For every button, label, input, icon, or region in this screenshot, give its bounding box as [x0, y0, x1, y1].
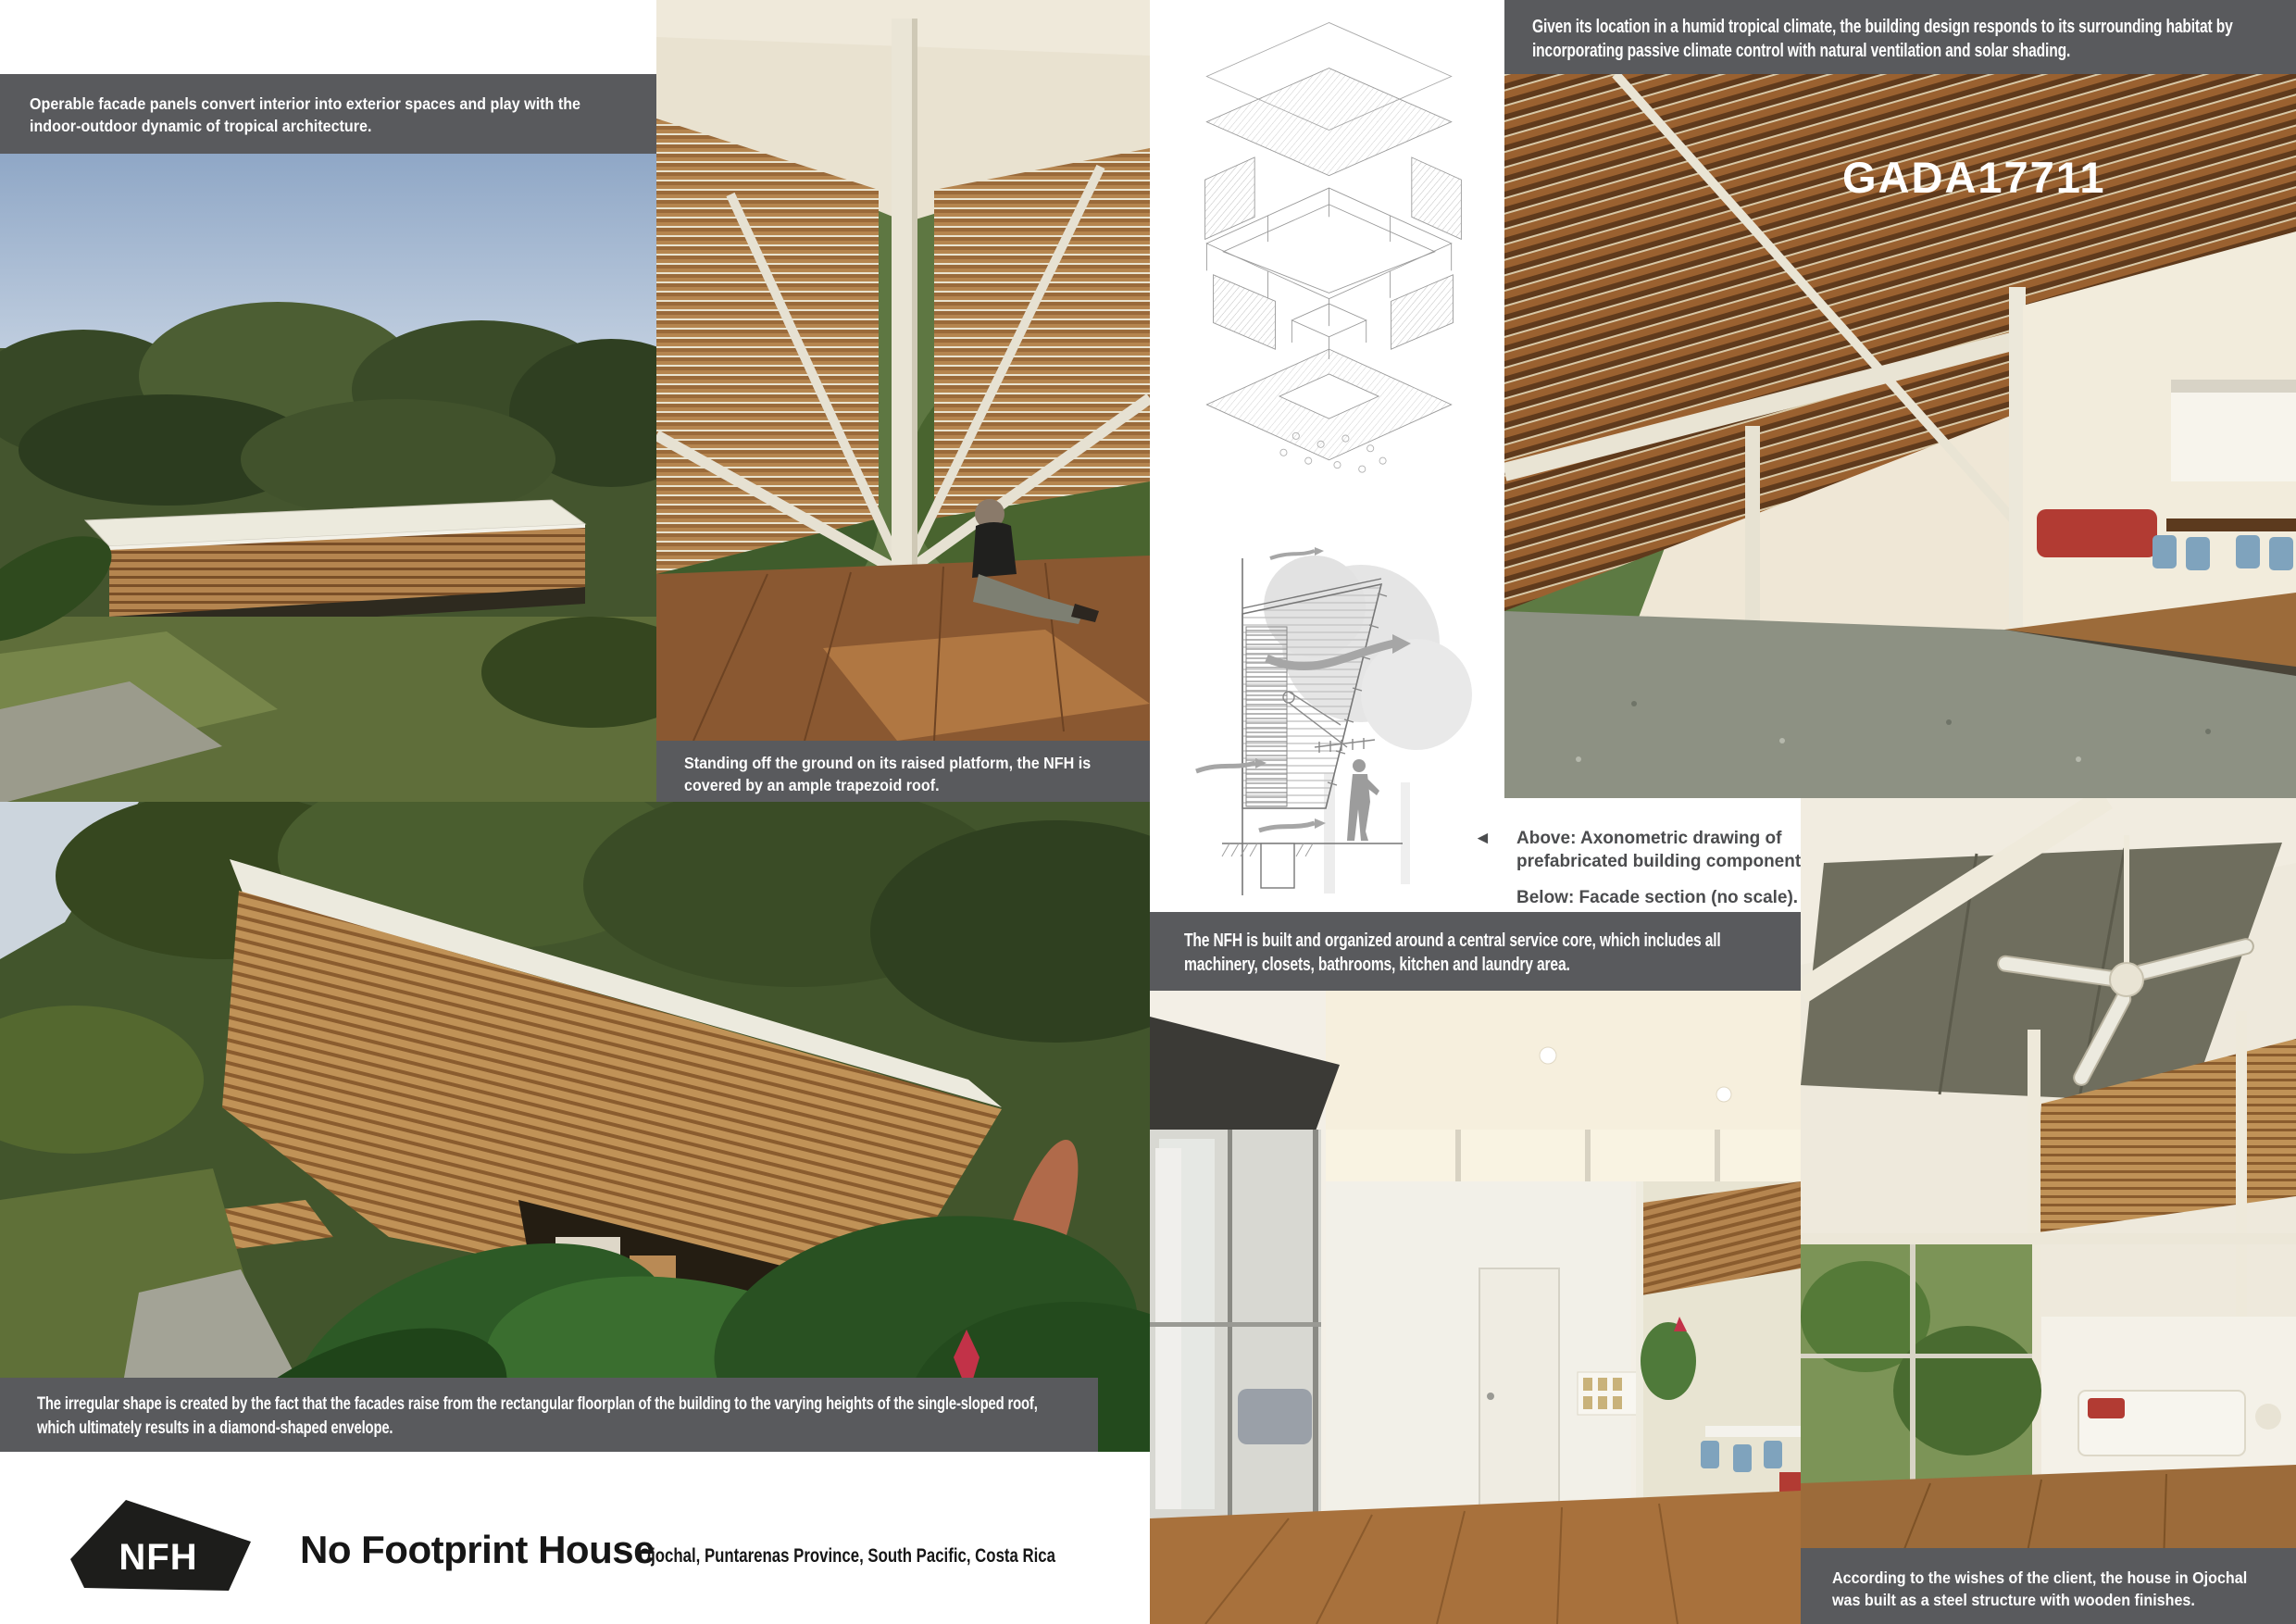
photo-person-under-roof: [656, 0, 1150, 741]
photo-house-exterior-forest: [0, 154, 656, 804]
caption-drawings-note: ◄ Above: Axonometric drawing of prefabri…: [1474, 827, 1826, 909]
caption-client-wishes: According to the wishes of the client, t…: [1801, 1548, 2296, 1624]
caption-service-core: The NFH is built and organized around a …: [1150, 912, 1801, 991]
caption-raised-platform-text: Standing off the ground on its raised pl…: [684, 752, 1110, 796]
nfh-logo-text: NFH: [119, 1537, 197, 1578]
left-pointer-icon: ◄: [1474, 827, 1516, 909]
project-location: Ojochal, Puntarenas Province, South Paci…: [639, 1545, 1055, 1568]
caption-client-wishes-text: According to the wishes of the client, t…: [1832, 1567, 2258, 1611]
photo-bedroom-fan: [1801, 798, 2296, 1624]
caption-raised-platform: Standing off the ground on its raised pl…: [656, 740, 1150, 802]
facade-section-drawing: [1185, 505, 1481, 921]
caption-irregular-shape-text: The irregular shape is created by the fa…: [37, 1393, 1048, 1441]
photo-diamond-house-block: The irregular shape is created by the fa…: [0, 802, 1150, 1452]
axonometric-drawing: [1190, 19, 1477, 481]
caption-irregular-shape: The irregular shape is created by the fa…: [0, 1378, 1098, 1452]
caption-operable-facade-text: Operable facade panels convert interior …: [30, 93, 609, 137]
photo-core-interior: [1150, 991, 1801, 1624]
caption-operable-facade: Operable facade panels convert interior …: [0, 74, 656, 154]
watermark: GADA17711: [1842, 152, 2106, 203]
nfh-logo: NFH: [69, 1498, 254, 1600]
photo-diamond-house: [0, 802, 1150, 1452]
caption-drawings-below: Below: Facade section (no scale).: [1516, 886, 1822, 909]
caption-climate: Given its location in a humid tropical c…: [1504, 0, 2296, 74]
presentation-board: Operable facade panels convert interior …: [0, 0, 2296, 1624]
caption-drawings-above: Above: Axonometric drawing of prefabrica…: [1516, 827, 1822, 873]
photo-bedroom-block: According to the wishes of the client, t…: [1801, 798, 2296, 1624]
caption-service-core-text: The NFH is built and organized around a …: [1184, 929, 1773, 977]
photo-louver-interior-block: GADA17711: [1504, 74, 2296, 798]
project-title: No Footprint House: [300, 1528, 655, 1572]
caption-climate-text: Given its location in a humid tropical c…: [1532, 15, 2262, 63]
